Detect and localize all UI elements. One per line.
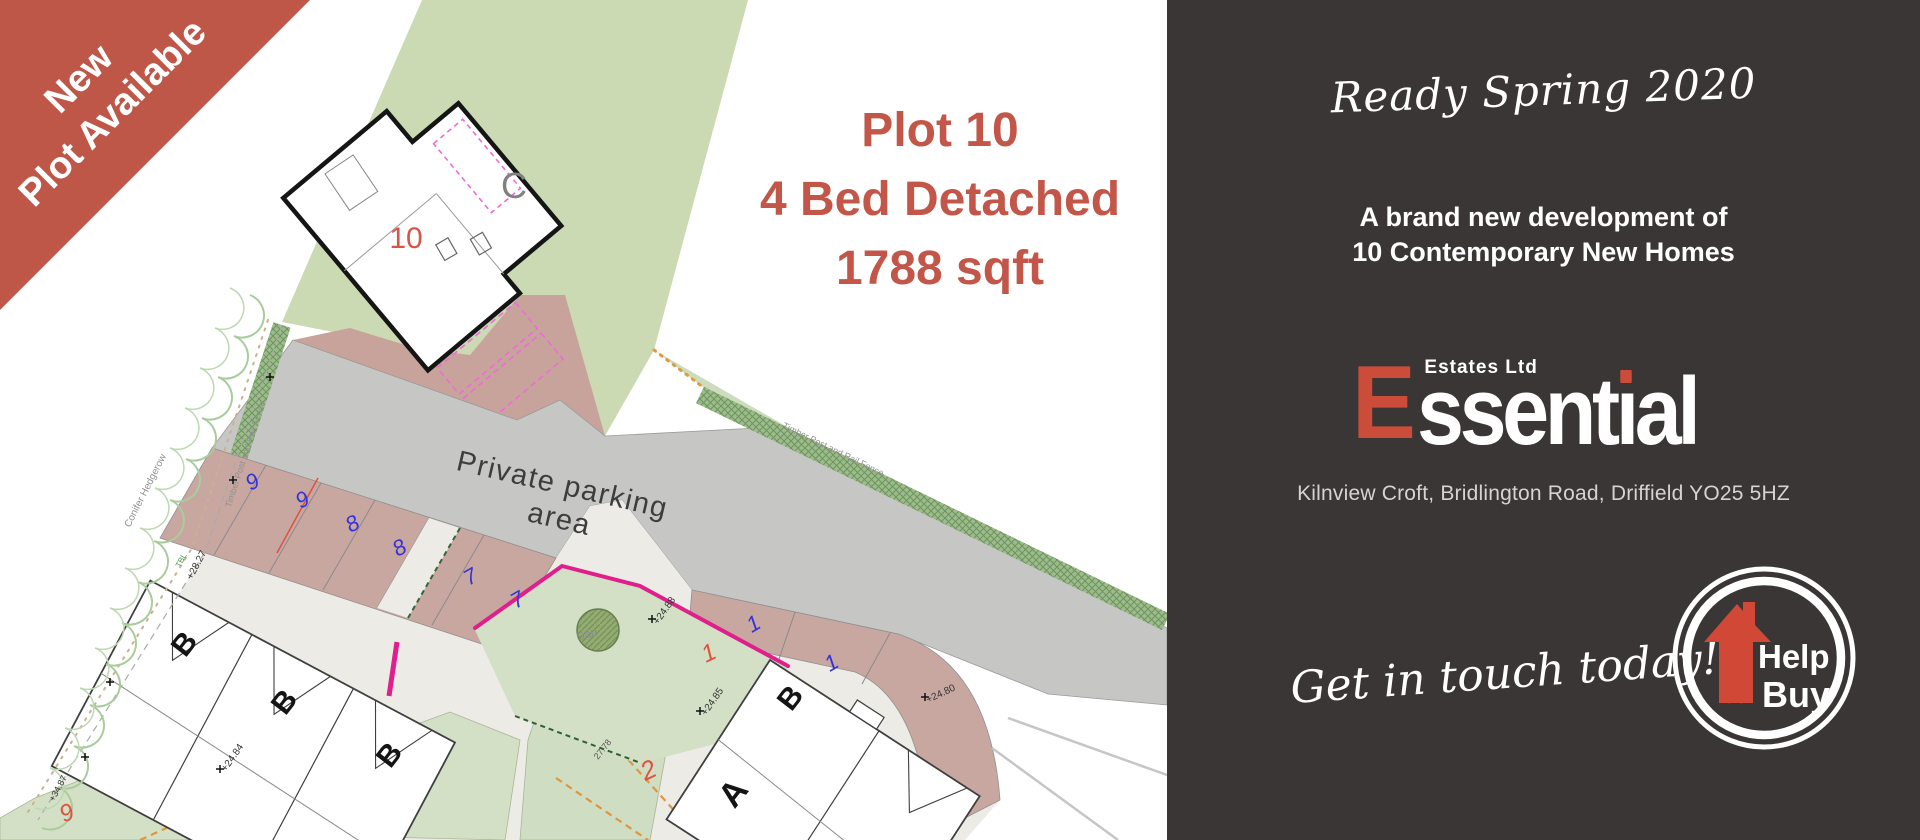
logo-letter-e: E <box>1352 364 1412 442</box>
property-flyer: Private parking area 10 C 9 9 8 8 7 7 1 … <box>0 0 1920 840</box>
dev-line2: 10 Contemporary New Homes <box>1167 235 1920 270</box>
development-description: A brand new development of 10 Contempora… <box>1167 200 1920 270</box>
plot10-number: 10 <box>389 222 422 255</box>
new-plot-ribbon: New Plot Available <box>0 0 320 320</box>
headline-plot: Plot 10 <box>640 96 1240 165</box>
htb-word-buy: Buy <box>1762 674 1830 715</box>
red-dot <box>1621 370 1632 383</box>
house-type-c: C <box>501 165 527 206</box>
ready-date-text: Ready Spring 2020 <box>1166 53 1920 128</box>
essential-estates-logo: E Estates Ltd ssentıal <box>1167 348 1920 442</box>
help-to-buy-logo: Help to Buy <box>1669 563 1859 753</box>
logo-i-red-dot: ı <box>1616 382 1635 442</box>
info-panel: Ready Spring 2020 A brand new developmen… <box>1167 0 1920 840</box>
plot-headline: Plot 10 4 Bed Detached 1788 sqft <box>640 96 1240 303</box>
htb-word-help: Help <box>1758 638 1830 675</box>
htb-word-to: to <box>1722 675 1751 710</box>
headline-type: 4 Bed Detached <box>640 165 1240 234</box>
logo-ssential: ssentıal <box>1417 382 1696 442</box>
headline-size: 1788 sqft <box>640 234 1240 303</box>
dev-line1: A brand new development of <box>1167 200 1920 235</box>
development-address: Kilnview Croft, Bridlington Road, Driffi… <box>1167 482 1920 506</box>
